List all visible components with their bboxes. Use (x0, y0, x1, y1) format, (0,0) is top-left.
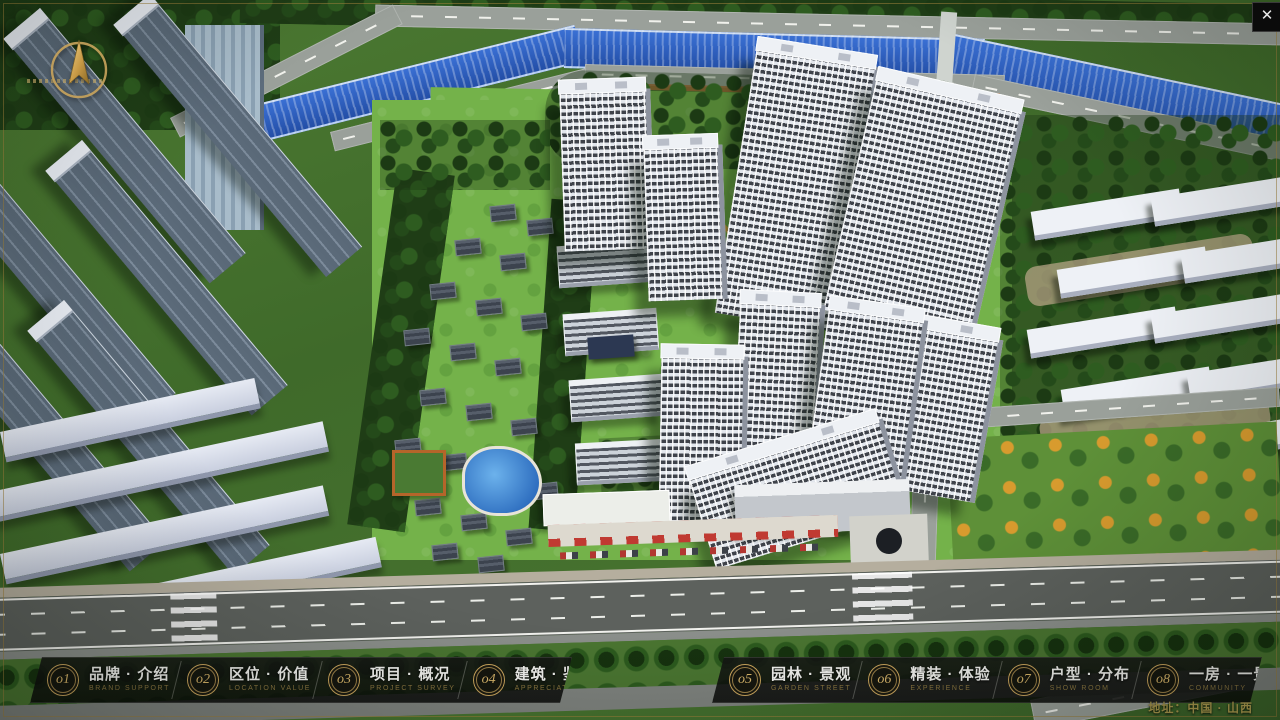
nav-item-text: 区位 · 价值 LOCATION VALUE (229, 667, 311, 693)
nav-item-number: o8 (1156, 672, 1170, 688)
aerial-render-viewport[interactable] (0, 0, 1280, 720)
nav-item-label-zh: 区位 · 价值 (229, 667, 311, 684)
nav-item-label-en: GARDEN STREET (771, 685, 851, 693)
courtyard-house (414, 498, 442, 517)
nav-item-label-zh: 项目 · 概况 (370, 667, 456, 684)
presentation-app: ✕ o1 品牌 · 介绍 BRAND SUPPORT o2 区位 · 价值 LO… (0, 0, 1280, 720)
courtyard-house (477, 555, 505, 574)
courtyard-house (489, 204, 517, 223)
nav-item-label-zh: 户型 · 分布 (1050, 667, 1130, 684)
nav-item-number: o7 (1017, 672, 1031, 688)
courtyard-house (499, 253, 527, 272)
nav-item-text: 户型 · 分布 SHOW ROOM (1050, 667, 1130, 693)
clubhouse (392, 450, 446, 496)
nav-number-badge: o2 (187, 664, 219, 696)
nav-number-badge: o6 (868, 664, 900, 696)
nav-item-number: o1 (56, 672, 70, 688)
pavilion (587, 334, 634, 359)
courtyard-house (460, 513, 488, 532)
gate-feature-circle (876, 528, 902, 554)
compass-north-indicator (46, 34, 112, 104)
courtyard-house (465, 403, 493, 422)
nav-item-number: o5 (738, 672, 752, 688)
nav-group-right: o5 园林 · 景观 GARDEN STREET o6 精装 · 体验 EXPE… (712, 657, 1262, 703)
courtyard-house (419, 388, 447, 407)
compass-icon (46, 34, 112, 104)
courtyard-house (494, 358, 522, 377)
nav-item-room-view[interactable]: o8 一房 · 一景 COMMUNITY (1130, 657, 1269, 703)
nav-item-text: 项目 · 概况 PROJECT SURVEY (370, 667, 456, 693)
nav-number-badge: o1 (47, 664, 79, 696)
nav-group-left: o1 品牌 · 介绍 BRAND SUPPORT o2 区位 · 价值 LOCA… (30, 657, 572, 703)
nav-item-number: o3 (337, 672, 351, 688)
nav-number-badge: o8 (1147, 664, 1179, 696)
nav-item-number: o6 (877, 672, 891, 688)
nav-number-badge: o3 (328, 664, 360, 696)
nav-item-label-en: EXPERIENCE (910, 685, 990, 693)
nav-item-brand-intro[interactable]: o1 品牌 · 介绍 BRAND SUPPORT (30, 657, 170, 703)
courtyard-house (520, 313, 548, 332)
nav-item-location-value[interactable]: o2 区位 · 价值 LOCATION VALUE (170, 657, 311, 703)
courtyard-house (505, 528, 533, 547)
nav-item-number: o4 (482, 672, 496, 688)
swimming-pool (462, 446, 542, 516)
residential-tower (559, 88, 656, 251)
nav-item-text: 园林 · 景观 GARDEN STREET (771, 667, 851, 693)
nav-item-number: o2 (196, 672, 210, 688)
nav-item-garden-landscape[interactable]: o5 园林 · 景观 GARDEN STREET (712, 657, 851, 703)
nav-item-label-en: PROJECT SURVEY (370, 685, 456, 693)
nav-item-floorplan-distribution[interactable]: o7 户型 · 分布 SHOW ROOM (991, 657, 1130, 703)
midrise-building (575, 444, 671, 486)
courtyard-house (431, 543, 459, 562)
nav-item-label-en: LOCATION VALUE (229, 685, 311, 693)
nav-item-label-zh: 园林 · 景观 (771, 667, 851, 684)
courtyard-house (475, 298, 503, 317)
autumn-garden (947, 421, 1280, 568)
compound-grove (380, 120, 550, 190)
nav-item-text: 品牌 · 介绍 BRAND SUPPORT (89, 667, 170, 693)
courtyard-house (449, 343, 477, 362)
nav-item-label-zh: 品牌 · 介绍 (89, 667, 170, 684)
nav-item-label-en: BRAND SUPPORT (89, 685, 170, 693)
courtyard-house (510, 418, 538, 437)
nav-item-text: 精装 · 体验 EXPERIENCE (910, 667, 990, 693)
courtyard-house (526, 218, 554, 237)
project-address: 地址：中国 · 山西 (1148, 699, 1253, 716)
nav-item-interior-experience[interactable]: o6 精装 · 体验 EXPERIENCE (851, 657, 990, 703)
nav-item-project-overview[interactable]: o3 项目 · 概况 PROJECT SURVEY (311, 657, 456, 703)
nav-number-badge: o5 (729, 664, 761, 696)
crosswalk (852, 572, 914, 626)
nav-number-badge: o4 (473, 664, 505, 696)
nav-item-label-en: SHOW ROOM (1050, 685, 1130, 693)
nav-item-label-zh: 精装 · 体验 (910, 667, 990, 684)
courtyard-house (454, 238, 482, 257)
crosswalk (170, 592, 218, 645)
courtyard-house (403, 328, 431, 347)
residential-tower (643, 145, 727, 302)
nav-number-badge: o7 (1008, 664, 1040, 696)
courtyard-house (429, 282, 457, 301)
midrise-building (569, 379, 665, 422)
close-icon: ✕ (1261, 7, 1274, 24)
close-button[interactable]: ✕ (1252, 2, 1280, 32)
